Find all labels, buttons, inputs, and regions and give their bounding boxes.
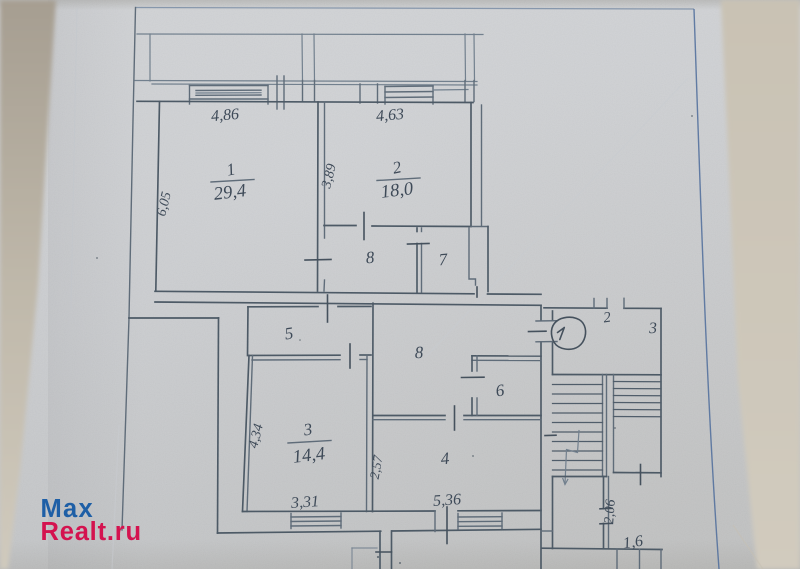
svg-text:14,4: 14,4 [292,444,327,468]
svg-text:3,31: 3,31 [289,493,319,512]
svg-text:Realt.ru: Realt.ru [41,518,142,546]
svg-text:2,06: 2,06 [602,499,619,524]
svg-text:3: 3 [648,320,658,337]
svg-text:29,4: 29,4 [213,181,248,205]
svg-text:4,86: 4,86 [210,106,239,125]
svg-text:5,36: 5,36 [432,491,461,510]
svg-text:1,6: 1,6 [622,533,644,553]
svg-text:18,0: 18,0 [380,179,415,203]
svg-text:8: 8 [414,343,424,362]
svg-text:4,63: 4,63 [375,106,404,125]
